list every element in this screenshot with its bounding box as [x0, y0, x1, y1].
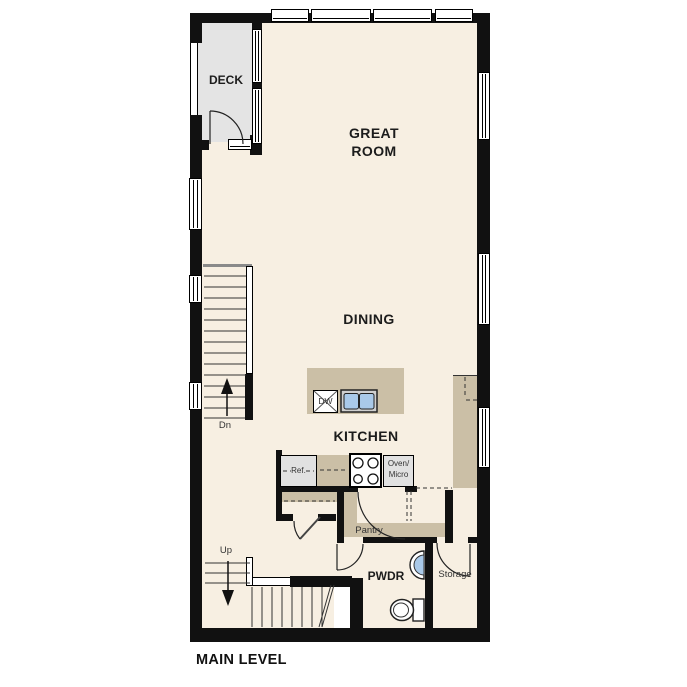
- stairs-up-label: Up: [214, 545, 238, 556]
- window: [478, 253, 490, 325]
- stairs-down-wall-stub: [245, 374, 253, 420]
- dishwasher-label: DW: [313, 396, 338, 406]
- wall-left-seg: [190, 410, 202, 628]
- window: [189, 382, 202, 410]
- deck-door-threshold: [228, 139, 252, 150]
- room-label-kitchen: KITCHEN: [329, 427, 403, 445]
- oven-micro-label-line2: Micro: [383, 470, 414, 479]
- pantry-left-wall: [337, 486, 344, 543]
- wall-left-seg: [190, 230, 202, 275]
- stairs-up-handrail-horizontal: [252, 577, 292, 586]
- entry-closet-shelf: [282, 491, 337, 502]
- window: [271, 9, 309, 22]
- stair-pwdr-wall: [350, 578, 363, 628]
- stairs-up-header-wall: [290, 576, 352, 587]
- deck-glass-panel: [252, 88, 262, 144]
- stairs-down-label: Dn: [212, 420, 238, 431]
- window: [478, 407, 490, 468]
- pantry-shelf-left: [344, 491, 357, 527]
- closet-bottom-wall-right: [318, 514, 336, 521]
- window: [311, 9, 371, 22]
- stove: [349, 453, 382, 488]
- pwdr-storage-divider-wall: [425, 537, 433, 628]
- kitchen-counter: [317, 455, 350, 487]
- room-label-pantry: Pantry: [347, 525, 391, 536]
- deck-glass-panel: [252, 29, 262, 83]
- wall-left-seg: [190, 303, 202, 382]
- stairs-up-landing: [334, 587, 350, 628]
- window: [478, 72, 490, 140]
- oven-micro-label-line1: Oven/: [383, 459, 414, 468]
- stairs-down-handrail: [246, 266, 253, 374]
- window: [373, 9, 432, 22]
- wall-bottom: [190, 628, 490, 642]
- room-label-storage: Storage: [433, 569, 477, 580]
- refrigerator-label: Ref.: [280, 466, 317, 475]
- storage-top-wall-stub: [468, 537, 478, 543]
- deck-bottom-wall: [195, 140, 209, 150]
- window: [189, 178, 202, 230]
- plan-title: MAIN LEVEL: [196, 652, 287, 668]
- kitchen-tall-counter: [453, 375, 477, 488]
- floor-plan-canvas: GREAT ROOM DINING KITCHEN DECK PWDR Stor…: [0, 0, 687, 687]
- stairs-down-top-edge: [203, 264, 252, 267]
- room-label-dining: DINING: [337, 310, 401, 328]
- closet-bottom-wall-left: [276, 514, 293, 521]
- window: [435, 9, 473, 22]
- room-label-pwdr: PWDR: [364, 569, 408, 583]
- wall-left-seg: [190, 13, 202, 43]
- pantry-right-wall: [445, 490, 453, 543]
- deck-railing: [190, 43, 198, 115]
- room-label-great-room: GREAT ROOM: [334, 124, 414, 160]
- room-label-deck: DECK: [206, 73, 246, 87]
- window: [189, 275, 202, 303]
